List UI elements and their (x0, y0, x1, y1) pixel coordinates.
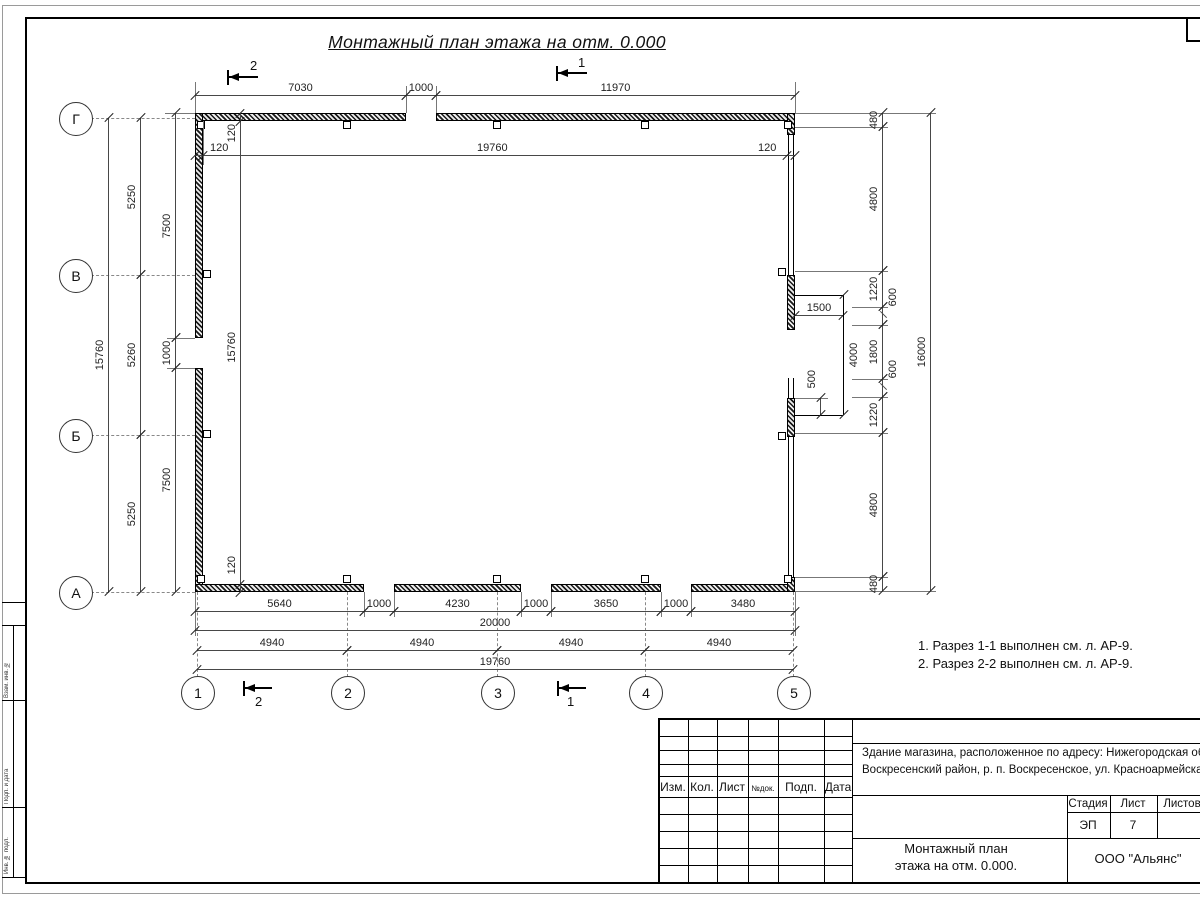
column-mark (778, 268, 786, 276)
section-mark-label: 1 (567, 694, 574, 709)
extension-line (167, 338, 195, 339)
axis-bubble-b: Б (59, 419, 93, 453)
titleblock-grid (658, 764, 852, 765)
dim-label: 120 (226, 124, 238, 142)
dim-segment: 4940 (497, 650, 645, 651)
titleblock-header: Подп. (785, 780, 817, 794)
dim-label: 4940 (559, 637, 583, 649)
extension-line (406, 86, 407, 113)
wall-bottom-4 (691, 584, 795, 592)
axis-bubble-3: 3 (481, 676, 515, 710)
dim-label: 480 (868, 111, 880, 129)
axis-bubble-g: Г (59, 102, 93, 136)
extension-line (167, 368, 195, 369)
axis-bubble-4: 4 (629, 676, 663, 710)
wall-left-lower (195, 368, 203, 592)
axis-label: А (71, 585, 80, 601)
titleblock-grid (717, 718, 718, 882)
note-line: 2. Разрез 2-2 выполнен см. л. АР-9. (918, 656, 1133, 671)
axis-label: 5 (790, 685, 798, 701)
dim-label: 4230 (445, 598, 469, 610)
dim-label: 4940 (707, 637, 731, 649)
dim-label: 5250 (126, 184, 138, 208)
strip-line (2, 877, 25, 878)
titleblock-grid (658, 865, 852, 866)
column-mark (203, 270, 211, 278)
dim-segment: 3480 (691, 611, 795, 612)
titleblock-grid (658, 831, 852, 832)
dim-segment: 16000 (930, 113, 931, 591)
column-mark (784, 121, 792, 129)
wall-left-upper (195, 113, 203, 338)
wall-right-pier-upper (787, 275, 795, 330)
column-mark (641, 121, 649, 129)
stamp-label: Подп. и дата (4, 706, 10, 804)
dim-label: 19760 (477, 142, 508, 154)
axis-label: 2 (344, 685, 352, 701)
column-mark (784, 575, 792, 583)
dim-label: 120 (210, 142, 228, 154)
dim-segment: 4940 (645, 650, 793, 651)
extension-line (795, 82, 796, 113)
dim-label: 20000 (480, 617, 511, 629)
axis-label: В (71, 268, 80, 284)
dim-segment: 19760 (197, 669, 793, 670)
dim-segment: 3650 (551, 611, 661, 612)
section-mark-line (558, 72, 587, 74)
extension-line (364, 592, 365, 617)
section-mark-line (559, 687, 586, 689)
titleblock-header: Изм. (660, 780, 686, 794)
axis-label: 1 (194, 685, 202, 701)
titleblock-grid (778, 718, 779, 882)
dim-label: 600 (887, 288, 899, 306)
dim-label: 5260 (126, 343, 138, 367)
axis-label: 4 (642, 685, 650, 701)
titleblock-grid (658, 797, 852, 798)
dim-label: 500 (806, 370, 818, 388)
extension-line (195, 82, 196, 113)
sheet-outer-left (2, 5, 3, 893)
dim-segment: 4000 (843, 295, 844, 415)
extension-line (661, 592, 662, 617)
dim-segment: 1000 (521, 611, 551, 612)
doc-title-line1: Монтажный план (904, 841, 1008, 856)
dim-label: 1000 (664, 598, 688, 610)
note-line: 1. Разрез 1-1 выполнен см. л. АР-9. (918, 638, 1133, 653)
recess-top-edge (795, 295, 843, 296)
frame-top (25, 17, 1200, 19)
axis-bubble-a: А (59, 576, 93, 610)
dim-label: 15760 (94, 340, 106, 371)
dim-segment: 1000 (175, 338, 176, 368)
dim-label: 600 (887, 360, 899, 378)
column-mark (778, 432, 786, 440)
axis-label: 3 (494, 685, 502, 701)
titleblock-header: №док. (751, 784, 774, 793)
wall-top-left (195, 113, 406, 121)
project-address-line2: Воскресенский район, р. п. Воскресенское… (862, 762, 1200, 780)
titleblock-border (658, 718, 660, 882)
column-mark (493, 575, 501, 583)
dim-label: 1000 (367, 598, 391, 610)
dim-segment: 11970 (436, 95, 795, 96)
column-mark (343, 121, 351, 129)
column-mark (197, 575, 205, 583)
doc-title-line2: этажа на отм. 0.000. (895, 858, 1017, 873)
dim-segment: 5250 (140, 435, 141, 592)
window-right-lower (788, 437, 794, 577)
stamp-label: Взам. инв. № (4, 632, 10, 698)
titleblock-grid (658, 750, 852, 751)
dim-label: 1000 (161, 341, 173, 365)
section-mark-line (245, 687, 272, 689)
dim-label: 5640 (267, 598, 291, 610)
dim-segment: 480 (882, 577, 883, 591)
dim-label: 11970 (601, 82, 631, 94)
dim-label: 19760 (480, 656, 511, 668)
column-mark (493, 121, 501, 129)
dim-segment: 1000 (364, 611, 394, 612)
dim-segment: 20000 (195, 630, 795, 631)
dim-segment: 1000 (406, 95, 436, 96)
wall-bottom-2 (394, 584, 521, 592)
titleblock-header: Кол. (690, 780, 714, 794)
sheet-outer-bottom (2, 893, 1200, 894)
dim-segment (820, 398, 821, 415)
dim-label: 1220 (868, 277, 880, 301)
dim-label: 1800 (868, 340, 880, 364)
dim-label: 1220 (868, 403, 880, 427)
dim-segment: 5260 (140, 275, 141, 435)
wall-bottom-3 (551, 584, 661, 592)
dim-label: 3480 (731, 598, 755, 610)
axis-line-v (91, 275, 195, 276)
axis-line-b (91, 435, 195, 436)
dim-label: 4800 (868, 493, 880, 517)
dim-segment: 7500 (175, 368, 176, 592)
dim-label: 4940 (260, 637, 284, 649)
frame-left (25, 17, 27, 882)
dim-label: 4940 (410, 637, 434, 649)
axis-label: Б (71, 428, 80, 444)
stamp-label: Инв. № подл. (4, 812, 10, 874)
titleblock-grid (824, 718, 825, 882)
dim-label: 4800 (868, 187, 880, 211)
dim-label: 5250 (126, 501, 138, 525)
drawing-title: Монтажный план этажа на отм. 0.000 (328, 32, 666, 53)
axis-bubble-v: В (59, 259, 93, 293)
strip-divider (13, 625, 14, 877)
column-mark (343, 575, 351, 583)
extension-line (394, 592, 395, 617)
dim-segment: 1220 (882, 397, 883, 433)
titleblock-grid (658, 848, 852, 849)
dim-segment: 15760 (108, 118, 109, 592)
titleblock-grid (852, 795, 1200, 796)
company-name: ООО "Альянс" (1095, 851, 1182, 866)
sheet-label: Лист (1121, 798, 1146, 810)
dim-segment: 4940 (347, 650, 497, 651)
section-mark-label: 1 (578, 55, 585, 70)
column-mark (203, 430, 211, 438)
titleblock-border (658, 718, 1200, 720)
titleblock-header: Лист (719, 780, 745, 794)
titleblock-grid (1110, 795, 1111, 838)
dim-label: 1500 (807, 302, 831, 314)
extension-line (691, 592, 692, 617)
dim-label: 120 (758, 142, 776, 154)
titleblock-grid (748, 718, 749, 882)
axis-line-5 (793, 592, 794, 677)
sheets-label: Листов (1163, 798, 1200, 810)
dim-segment: 4940 (197, 650, 347, 651)
dim-label: 4000 (848, 343, 860, 367)
dim-segment: 7030 (195, 95, 406, 96)
titleblock-grid (1157, 795, 1158, 838)
strip-line (2, 602, 25, 603)
titleblock-grid (852, 838, 1200, 839)
window-right-stub (788, 378, 794, 398)
sheet-outer-top (2, 5, 1200, 6)
dim-label: 7030 (288, 82, 312, 94)
extension-line (795, 398, 828, 399)
stage-value: ЭП (1079, 818, 1096, 832)
dim-label: 120 (226, 556, 238, 574)
dim-label: 16000 (916, 337, 928, 368)
extension-line (795, 591, 936, 592)
frame-bottom (25, 882, 1200, 884)
drawing-sheet: Взам. инв. № Подп. и дата Инв. № подл. М… (0, 0, 1200, 900)
extension-line (795, 271, 888, 272)
axis-bubble-1: 1 (181, 676, 215, 710)
dim-segment: 1000 (661, 611, 691, 612)
titleblock-grid (658, 814, 852, 815)
dim-segment: 1220 (882, 271, 883, 307)
dim-line (240, 113, 241, 592)
dim-label: 3650 (594, 598, 618, 610)
axis-line-2 (347, 592, 348, 677)
dim-segment: 1500 (795, 315, 843, 316)
dim-label: 7500 (161, 468, 173, 492)
axis-line-4 (645, 592, 646, 677)
dim-segment: 4800 (882, 127, 883, 271)
dim-segment: 1800 (882, 325, 883, 379)
dim-segment: 4230 (394, 611, 521, 612)
column-mark (641, 575, 649, 583)
wall-bottom-1 (195, 584, 364, 592)
dim-label: 15760 (226, 332, 238, 363)
titleblock-grid (688, 718, 689, 882)
dim-segment: 7500 (175, 113, 176, 338)
section-mark-label: 2 (250, 58, 257, 73)
dim-label: 7500 (161, 213, 173, 237)
dim-segment: 5250 (140, 118, 141, 275)
sheet-value: 7 (1130, 818, 1137, 832)
stage-label: Стадия (1068, 798, 1107, 810)
wall-right-pier-lower (787, 398, 795, 437)
corner-stamp-box (1186, 17, 1200, 42)
dim-segment: 4800 (882, 433, 883, 577)
titleblock-header: Дата (825, 780, 852, 794)
section-mark-label: 2 (255, 694, 262, 709)
extension-line (165, 113, 195, 114)
dim-segment: 5640 (195, 611, 364, 612)
dim-label: 1000 (524, 598, 548, 610)
extension-line (436, 86, 437, 113)
axis-bubble-2: 2 (331, 676, 365, 710)
extension-line (551, 592, 552, 617)
extension-line (795, 433, 888, 434)
titleblock-grid (658, 736, 852, 737)
titleblock-grid (1067, 812, 1200, 813)
titleblock-grid (658, 776, 852, 777)
section-mark-line (229, 76, 258, 78)
extension-line (521, 592, 522, 617)
dim-line (195, 155, 795, 156)
axis-label: Г (72, 111, 80, 127)
project-address-line1: Здание магазина, расположенное по адресу… (862, 745, 1200, 763)
dim-label: 1000 (409, 82, 433, 94)
dim-label: 480 (868, 575, 880, 593)
wall-top-right (436, 113, 795, 121)
extension-line (795, 113, 936, 114)
titleblock-grid (852, 743, 1200, 744)
extension-line (203, 121, 204, 165)
axis-line-1 (197, 592, 198, 677)
axis-bubble-5: 5 (777, 676, 811, 710)
